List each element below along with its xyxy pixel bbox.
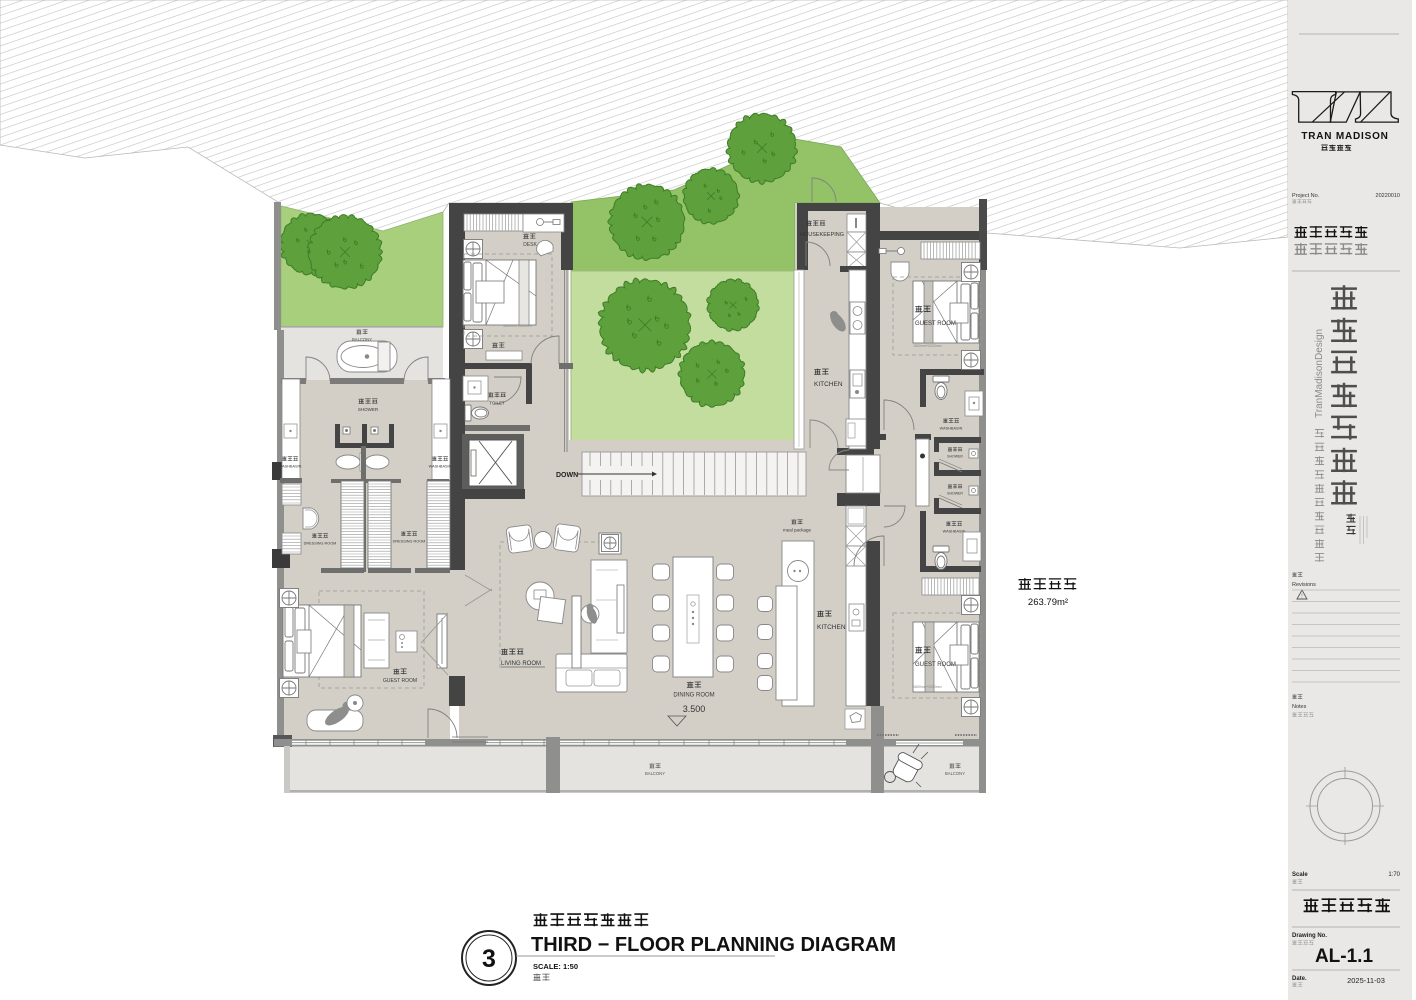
svg-text:20220010: 20220010 [1376, 193, 1400, 199]
svg-text:SCALE: 1:50: SCALE: 1:50 [533, 962, 578, 971]
svg-text:WASHBASIN: WASHBASIN [940, 426, 963, 430]
svg-text:WASHBASIN: WASHBASIN [279, 464, 302, 468]
svg-text:263.79m²: 263.79m² [1028, 597, 1068, 608]
svg-text:BALCONY: BALCONY [645, 771, 665, 776]
svg-text:TOILET: TOILET [489, 401, 505, 406]
svg-text:2025-11-03: 2025-11-03 [1347, 976, 1385, 985]
svg-text:Date.: Date. [1292, 976, 1307, 982]
svg-text:BALCONY: BALCONY [945, 771, 965, 776]
svg-text:Project No.: Project No. [1292, 193, 1320, 199]
svg-text:TranMadisonDesign: TranMadisonDesign [1314, 329, 1325, 418]
svg-text:3: 3 [482, 945, 496, 973]
svg-text:!: ! [1301, 594, 1302, 600]
svg-text:1800mm*2000mm: 1800mm*2000mm [913, 685, 942, 689]
svg-text:SHOWER: SHOWER [947, 455, 963, 459]
svg-text:AL-1.1: AL-1.1 [1315, 946, 1374, 967]
svg-text:GUEST ROOM: GUEST ROOM [915, 321, 956, 327]
svg-text:TRAN MADISON: TRAN MADISON [1301, 131, 1388, 142]
svg-text:SHOWER: SHOWER [947, 492, 963, 496]
svg-text:SHOWER: SHOWER [358, 407, 379, 412]
svg-text:meal package: meal package [783, 528, 812, 533]
svg-text:1800mm*2000mm: 1800mm*2000mm [503, 324, 532, 328]
svg-text:Revisions: Revisions [1292, 582, 1316, 588]
svg-text:DOWN: DOWN [556, 472, 578, 479]
svg-text:Drawing No.: Drawing No. [1292, 933, 1327, 939]
svg-text:DRESSING ROOM: DRESSING ROOM [304, 541, 337, 545]
svg-text:1800mm*2000mm: 1800mm*2000mm [913, 344, 942, 348]
svg-text:DRESSING ROOM: DRESSING ROOM [393, 539, 426, 543]
svg-text:GUEST ROOM: GUEST ROOM [915, 662, 956, 668]
svg-text:HOUSEKEEPING: HOUSEKEEPING [800, 232, 844, 238]
svg-text:KITCHEN: KITCHEN [814, 381, 843, 388]
svg-text:THIRD − FLOOR PLANNING DIAGRAM: THIRD − FLOOR PLANNING DIAGRAM [531, 934, 896, 956]
svg-text:LIVING ROOM: LIVING ROOM [501, 661, 541, 667]
svg-text:DINING ROOM: DINING ROOM [673, 693, 714, 699]
svg-text:DESK: DESK [523, 242, 537, 248]
svg-text:1:70: 1:70 [1388, 872, 1400, 878]
svg-text:Scale: Scale [1292, 872, 1308, 878]
svg-text:GUEST ROOM: GUEST ROOM [383, 678, 417, 684]
svg-text:KITCHEN: KITCHEN [817, 624, 846, 631]
svg-text:3.500: 3.500 [683, 704, 706, 714]
svg-text:BALCONY: BALCONY [352, 337, 372, 342]
svg-text:WASHBASIN: WASHBASIN [429, 464, 452, 468]
svg-text:Notes: Notes [1292, 704, 1307, 710]
svg-text:WASHBASIN: WASHBASIN [943, 529, 966, 533]
